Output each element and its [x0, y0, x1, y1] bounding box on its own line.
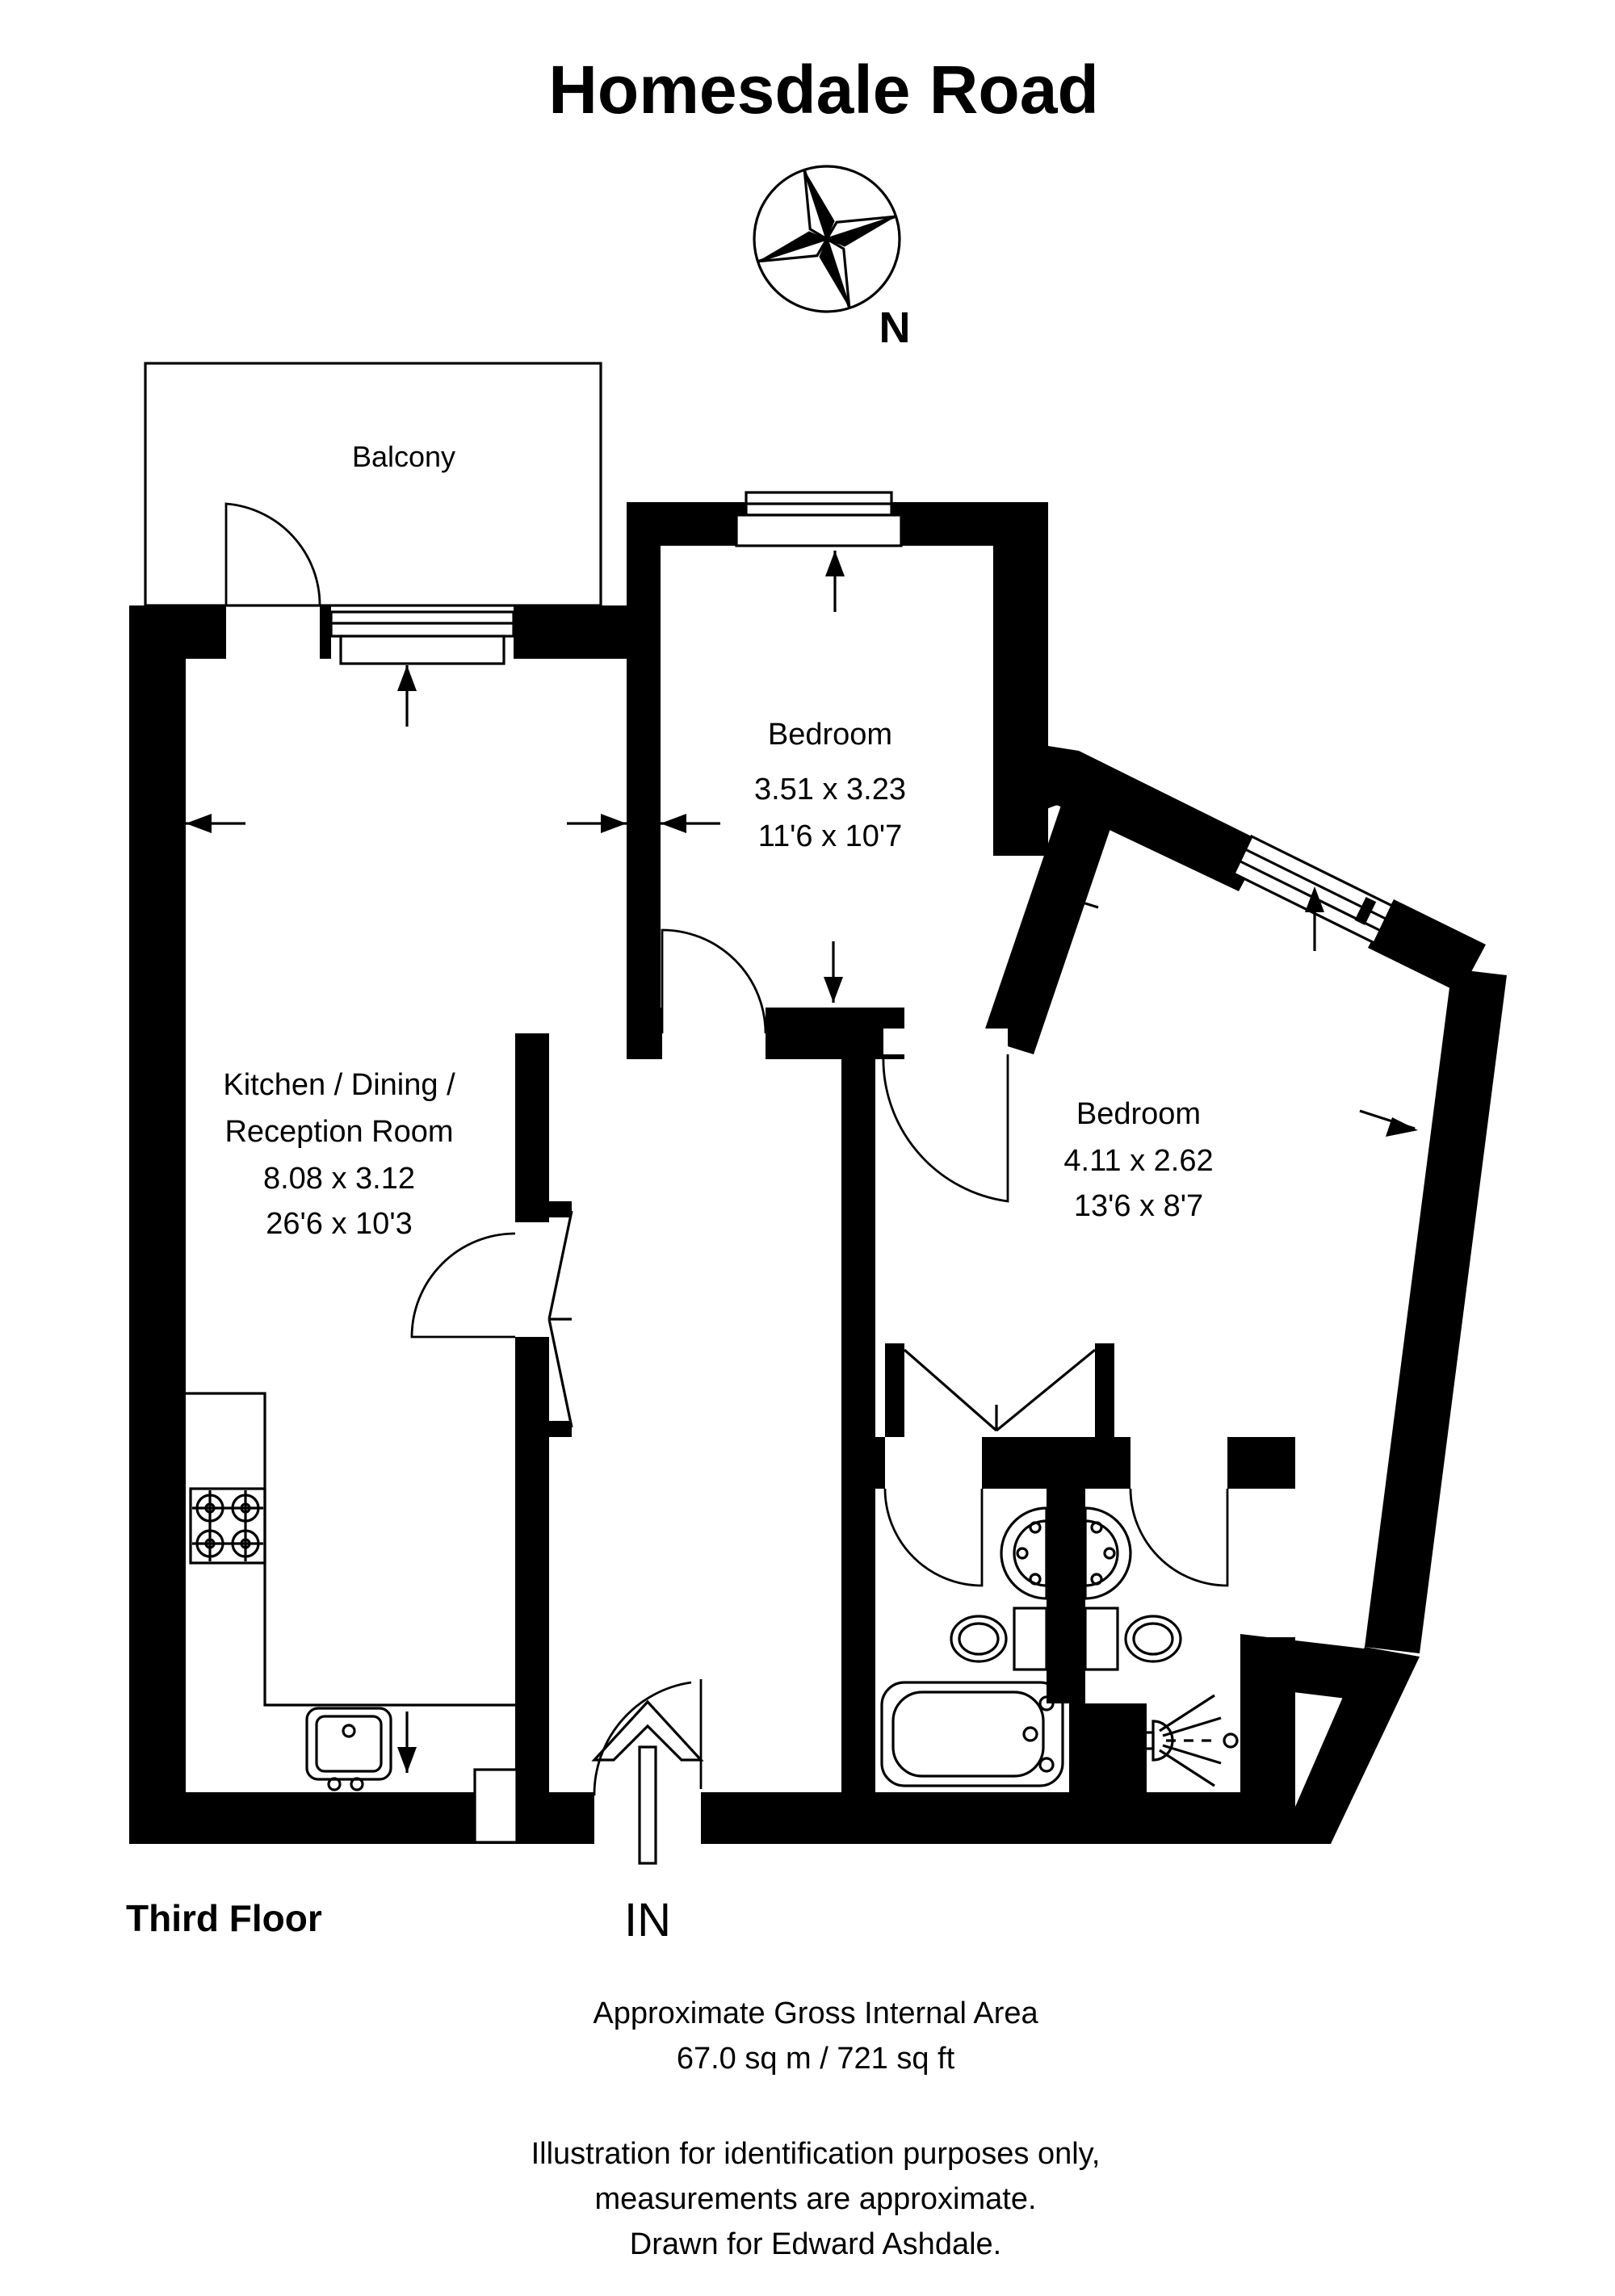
area-line1: Approximate Gross Internal Area — [593, 1996, 1038, 2030]
disclaimer-line2: measurements are approximate. — [594, 2182, 1036, 2216]
kitchen-door-gap — [515, 1222, 549, 1337]
wall-bath-pillar — [1069, 1703, 1147, 1844]
wall-ensuite-right — [1240, 1637, 1295, 1844]
window-sill — [736, 515, 901, 546]
wall-closet-stub-top — [549, 1201, 572, 1217]
closet-door-line — [549, 1211, 572, 1319]
balcony-outline — [145, 363, 601, 605]
bedroom1-dim-metric: 3.51 x 3.23 — [754, 773, 906, 807]
bedroom2-dim-metric: 4.11 x 2.62 — [1063, 1144, 1213, 1178]
hob-icon — [191, 1489, 265, 1563]
footer: Third Floor Approximate Gross Internal A… — [126, 1897, 1100, 2261]
wall-wardrobe-stub-right — [1095, 1343, 1114, 1437]
toilet-bowl-inner — [1134, 1624, 1172, 1654]
bathroom-toilet-icon — [951, 1608, 1047, 1670]
tub-tap — [1040, 1758, 1053, 1771]
wall-bedroom2-east — [1365, 969, 1507, 1653]
wall-kitchen-left — [129, 605, 186, 1844]
disclaimer-line1: Illustration for identification purposes… — [531, 2137, 1101, 2171]
entry-arrow-shaft — [640, 1747, 656, 1863]
area-line2: 67.0 sq m / 721 sq ft — [677, 2042, 955, 2076]
bathroom-basin-icon — [1001, 1508, 1047, 1598]
shower-drain — [1224, 1734, 1237, 1747]
basin-drain — [1017, 1548, 1027, 1558]
dim-arrow-right — [601, 814, 627, 833]
dim-arrow-left — [186, 814, 212, 833]
tub-inner — [893, 1692, 1043, 1776]
burner-cross-lines — [192, 1490, 263, 1561]
kitchen-dim-metric: 8.08 x 3.12 — [263, 1162, 415, 1196]
floor-label: Third Floor — [126, 1897, 322, 1939]
basin-drain — [1105, 1548, 1114, 1558]
floorplan-page: Homesdale Road N — [0, 0, 1615, 2296]
ensuite-toilet-icon — [1085, 1608, 1181, 1670]
compass-north-label: N — [879, 304, 911, 352]
page-title: Homesdale Road — [548, 52, 1099, 128]
bedroom2-window-icon — [1234, 836, 1392, 943]
wall-bottom-left — [129, 1792, 594, 1844]
closet-door-line — [549, 1319, 572, 1427]
balcony-door-arc — [226, 504, 320, 605]
tub-drain — [1024, 1728, 1037, 1741]
wall-bedroom1-bottom-stub — [627, 1008, 662, 1059]
bedroom2-door-gap — [883, 1029, 1008, 1054]
sink-drain — [343, 1725, 354, 1737]
kitchen-dining-reception: Kitchen / Dining / Reception Room 8.08 x… — [186, 1068, 515, 1790]
balcony-door-gap — [226, 605, 320, 659]
wall-bathroom-divider — [1047, 1489, 1085, 1703]
wall-bathroom-left — [841, 1437, 875, 1844]
wall-bedroom2-west — [841, 1029, 875, 1437]
ensuite-door-arc — [1130, 1489, 1227, 1586]
wall-bottom-right — [701, 1792, 1295, 1844]
entrance-label: IN — [624, 1894, 671, 1946]
bedroom1-dim-imperial: 11'6 x 10'7 — [758, 819, 903, 853]
bedroom1-window-icon — [736, 492, 901, 546]
dim-arrow-up — [825, 551, 845, 576]
bathtub-icon — [882, 1682, 1063, 1786]
bedroom1-door-gap — [662, 1008, 766, 1059]
kitchen-wall-recess — [475, 1770, 517, 1842]
kitchen-door-arc — [412, 1234, 515, 1337]
wall-closet-stub-bottom — [549, 1421, 572, 1437]
floor-plan-canvas: Homesdale Road N — [0, 0, 1615, 2296]
kitchen-label-line1: Kitchen / Dining / — [223, 1068, 455, 1102]
disclaimer-line3: Drawn for Edward Ashdale. — [630, 2227, 1001, 2261]
bathroom-door-arc — [885, 1489, 982, 1586]
bedroom2-label: Bedroom — [1076, 1097, 1201, 1131]
bedroom-top: Bedroom 3.51 x 3.23 11'6 x 10'7 — [662, 492, 906, 1033]
bedroom1-label: Bedroom — [768, 718, 892, 752]
bedroom2-door-arc — [883, 1054, 1008, 1201]
dim-arrow-left — [661, 814, 686, 833]
toilet-cistern — [1014, 1608, 1047, 1670]
wardrobe-door-line — [996, 1350, 1095, 1431]
hallway-closet-icon — [549, 1211, 572, 1427]
wardrobe-icon — [904, 1350, 1095, 1431]
wall-kitchen-bedroom1 — [627, 502, 661, 1059]
kitchen-sink-icon — [307, 1708, 391, 1790]
dim-arrow-up — [397, 665, 417, 691]
bathroom-door-gap — [885, 1437, 982, 1489]
dim-arrow-down — [397, 1747, 417, 1773]
kitchen-label-line2: Reception Room — [224, 1115, 453, 1149]
dim-arrow-down — [824, 977, 843, 1003]
toilet-cistern — [1085, 1608, 1118, 1670]
balcony-label: Balcony — [352, 440, 455, 473]
hob-burners — [192, 1490, 263, 1561]
balcony-window-icon — [331, 612, 514, 664]
wall-kitchen-hall — [515, 1033, 549, 1792]
kitchen-dim-imperial: 26'6 x 10'3 — [266, 1207, 412, 1241]
bedroom2-dim-imperial: 13'6 x 8'7 — [1074, 1189, 1203, 1223]
bathroom — [882, 1489, 1063, 1786]
wardrobe-door-line — [904, 1350, 996, 1431]
compass-rose-icon: N — [736, 148, 919, 352]
window-pane — [1234, 836, 1392, 943]
window-sill — [341, 636, 504, 664]
shower-icon — [1143, 1695, 1237, 1786]
ensuite-basin-icon — [1085, 1508, 1130, 1598]
wall-wardrobe-stub-left — [885, 1343, 904, 1437]
ensuite-door-gap — [1130, 1437, 1227, 1489]
toilet-bowl-inner — [959, 1624, 998, 1654]
